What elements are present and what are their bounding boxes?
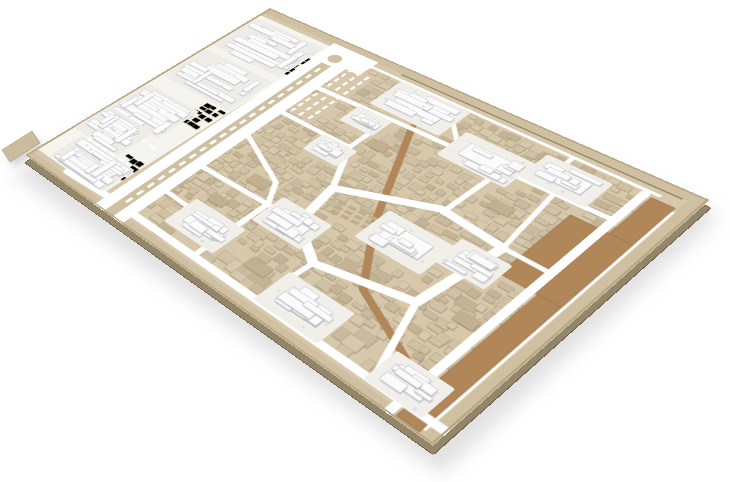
model-scene (0, 0, 730, 482)
